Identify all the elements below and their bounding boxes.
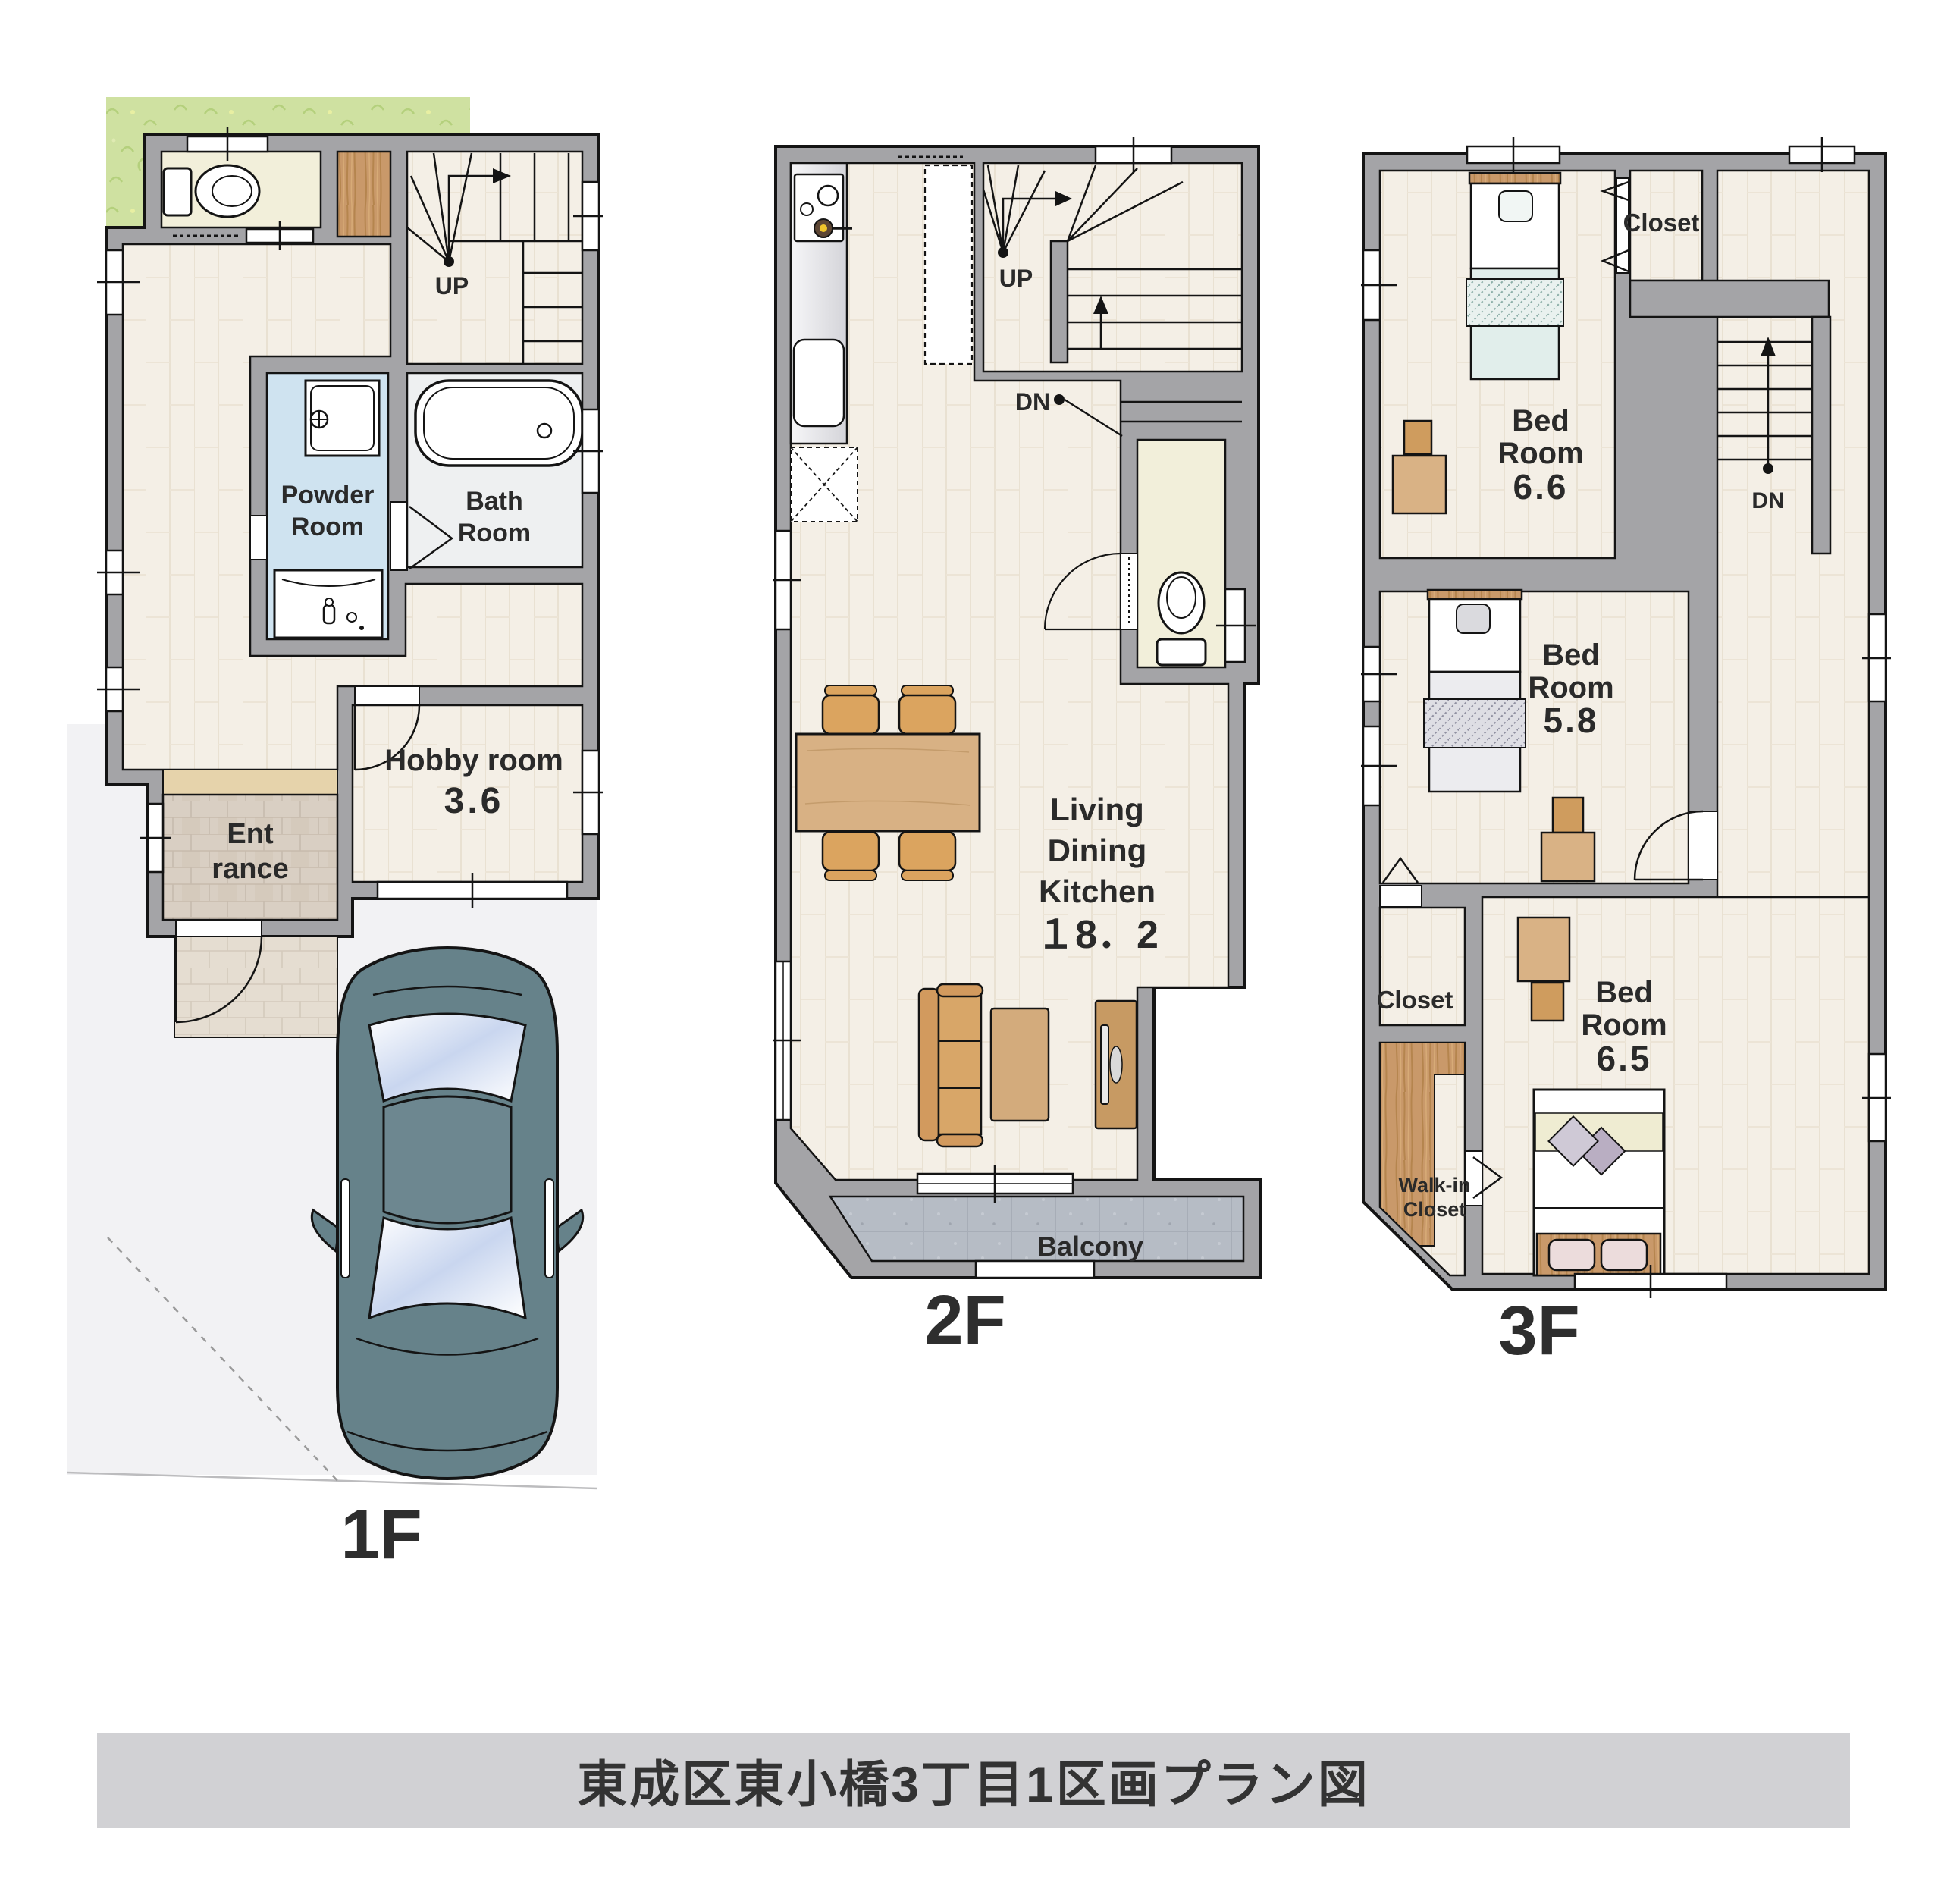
label-bath-1: Bath [466,487,523,516]
label-ldk-3: Kitchen [1039,874,1156,909]
coffee-table-icon [991,1008,1049,1121]
bed-icon-3-double [1534,1090,1664,1275]
label-hobby-size: 3.6 [444,781,504,821]
plan-title: 東成区東小橋3丁目1区画プラン図 [577,1744,1369,1817]
label-ldk-size: １8．2 [1036,913,1159,957]
pillow-icon [1499,191,1532,221]
label-bed1-2: Room [1497,437,1583,470]
label-bed2-size: 5.8 [1544,701,1599,740]
floor-label-3f: 3F [1498,1292,1579,1369]
label-bed1-size: 6.6 [1513,467,1569,507]
car-icon [312,948,582,1479]
label-dn-3f: DN [1751,488,1784,513]
refrigerator-space [925,165,972,364]
floor-plan-sheet: UP [0,0,1941,1904]
powder-door-opening [250,516,267,560]
title-banner: 東成区東小橋3丁目1区画プラン図 [97,1733,1850,1828]
label-balcony: Balcony [1037,1231,1143,1262]
label-bed3-size: 6.5 [1597,1039,1652,1078]
label-ldk-2: Dining [1048,833,1147,868]
label-up-2f: UP [999,265,1033,292]
toilet-icon-1f [164,165,259,217]
label-bath-2: Room [458,519,531,547]
sofa-icon [919,984,983,1146]
tv-board-icon [1096,1001,1137,1128]
stair-room-1f [407,152,582,364]
porch [174,936,337,1037]
desk-icon-2 [1541,833,1595,881]
floor-plan-3f: DN [1361,114,1892,1486]
floor-plan-1f: UP [64,64,603,1581]
floor-label-1f: 1F [340,1496,422,1573]
floor-plan-2f: UP DN [773,114,1281,1426]
label-up-1f: UP [435,272,469,300]
chair-icon-1 [1404,421,1431,454]
label-wic-2: Closet [1403,1198,1466,1221]
entrance-step [163,770,337,795]
label-closet-top: Closet [1623,209,1700,237]
bath-door-opening [390,502,407,570]
label-wic-1: Walk-in [1398,1174,1470,1197]
label-dn-2f: DN [1015,388,1050,416]
label-bed3-1: Bed [1595,976,1653,1009]
lot-boundary-line [67,1473,597,1488]
desk-icon-1 [1393,456,1446,513]
desk-icon-3 [1518,917,1569,981]
bathtub-icon [415,381,582,466]
label-entrance-2: rance [212,853,288,885]
bed-icon-2 [1424,590,1526,792]
kitchen-sink-icon [794,340,844,426]
chair-icon-3 [1532,983,1563,1021]
laundry-pan-icon [306,381,379,456]
label-bed2-2: Room [1528,671,1613,704]
closet-1f [337,152,390,237]
label-powder-1: Powder [281,481,375,510]
toilet-icon-2f [1157,572,1206,665]
label-closet-mid: Closet [1377,986,1453,1014]
bed-icon-1 [1466,173,1563,379]
label-entrance-1: Ent [227,818,274,850]
wall-closet-bottom [1630,281,1829,317]
floor-label-2f: 2F [924,1281,1005,1359]
pillow-icon [1457,604,1490,633]
label-bed3-2: Room [1581,1008,1667,1042]
chair-icon-2 [1553,798,1583,833]
label-hobby: Hobby room [384,744,563,777]
sink-vanity-icon [274,570,382,638]
label-powder-2: Room [291,513,364,541]
label-ldk-1: Living [1050,792,1144,827]
label-bed2-1: Bed [1542,638,1600,672]
label-bed1-1: Bed [1512,404,1569,438]
